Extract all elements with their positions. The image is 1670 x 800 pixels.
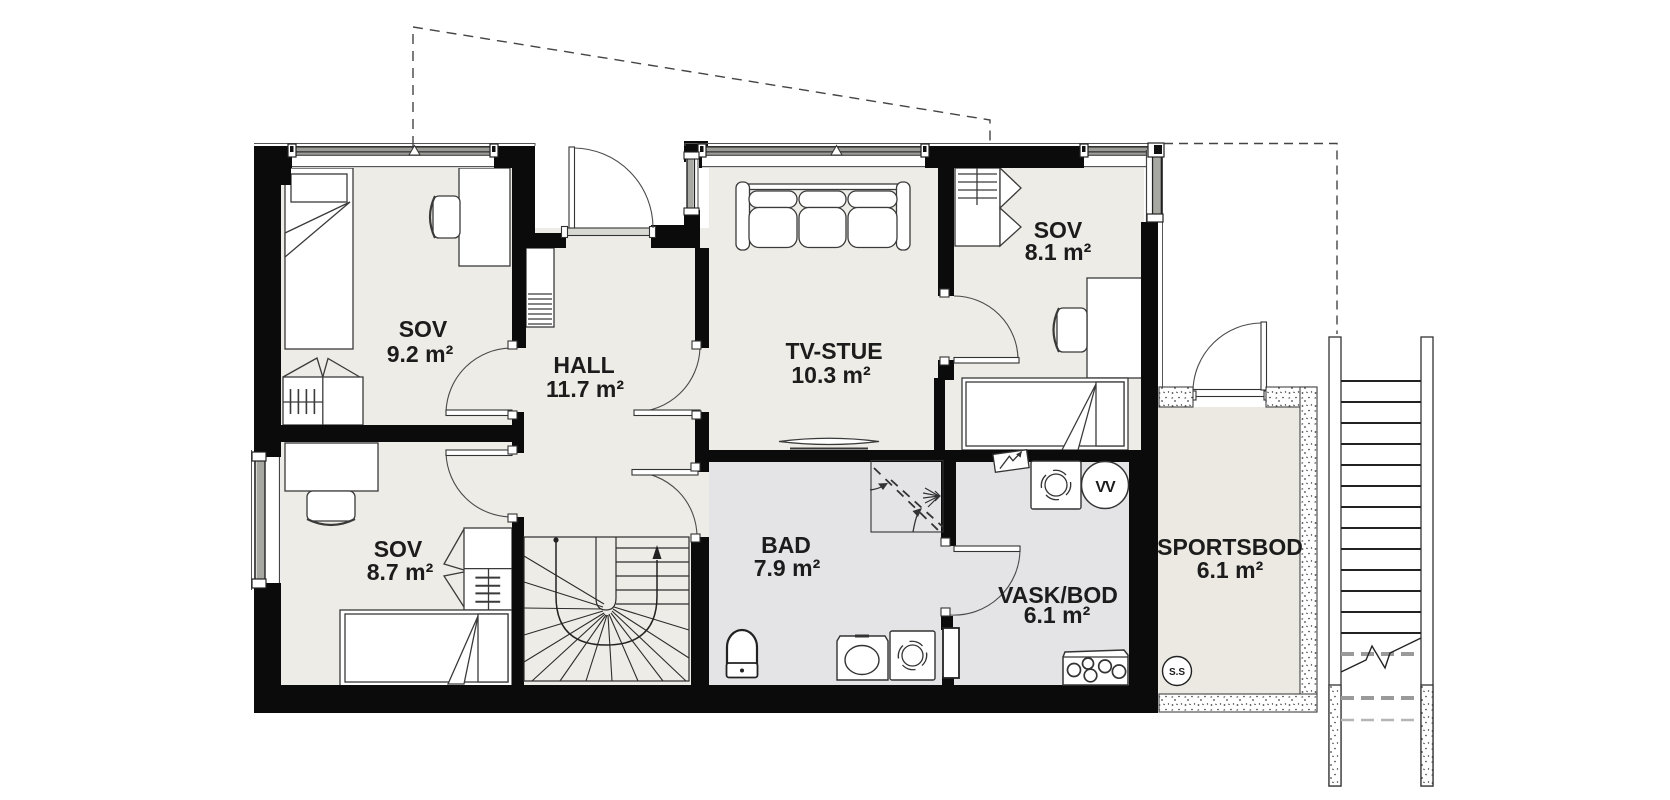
svg-text:10.3 m²: 10.3 m² bbox=[791, 362, 871, 388]
svg-text:HALL: HALL bbox=[553, 352, 614, 378]
svg-text:8.1 m²: 8.1 m² bbox=[1025, 239, 1092, 265]
svg-text:VV: VV bbox=[1095, 479, 1116, 496]
svg-text:S.S: S.S bbox=[1169, 667, 1185, 678]
svg-text:7.9 m²: 7.9 m² bbox=[754, 555, 821, 581]
svg-text:9.2 m²: 9.2 m² bbox=[387, 341, 454, 367]
svg-text:SOV: SOV bbox=[399, 316, 448, 342]
svg-text:11.7 m²: 11.7 m² bbox=[546, 376, 624, 402]
svg-text:TV-STUE: TV-STUE bbox=[785, 338, 882, 364]
svg-text:6.1 m²: 6.1 m² bbox=[1197, 557, 1264, 583]
svg-text:6.1 m²: 6.1 m² bbox=[1024, 602, 1091, 628]
svg-text:8.7 m²: 8.7 m² bbox=[367, 559, 434, 585]
